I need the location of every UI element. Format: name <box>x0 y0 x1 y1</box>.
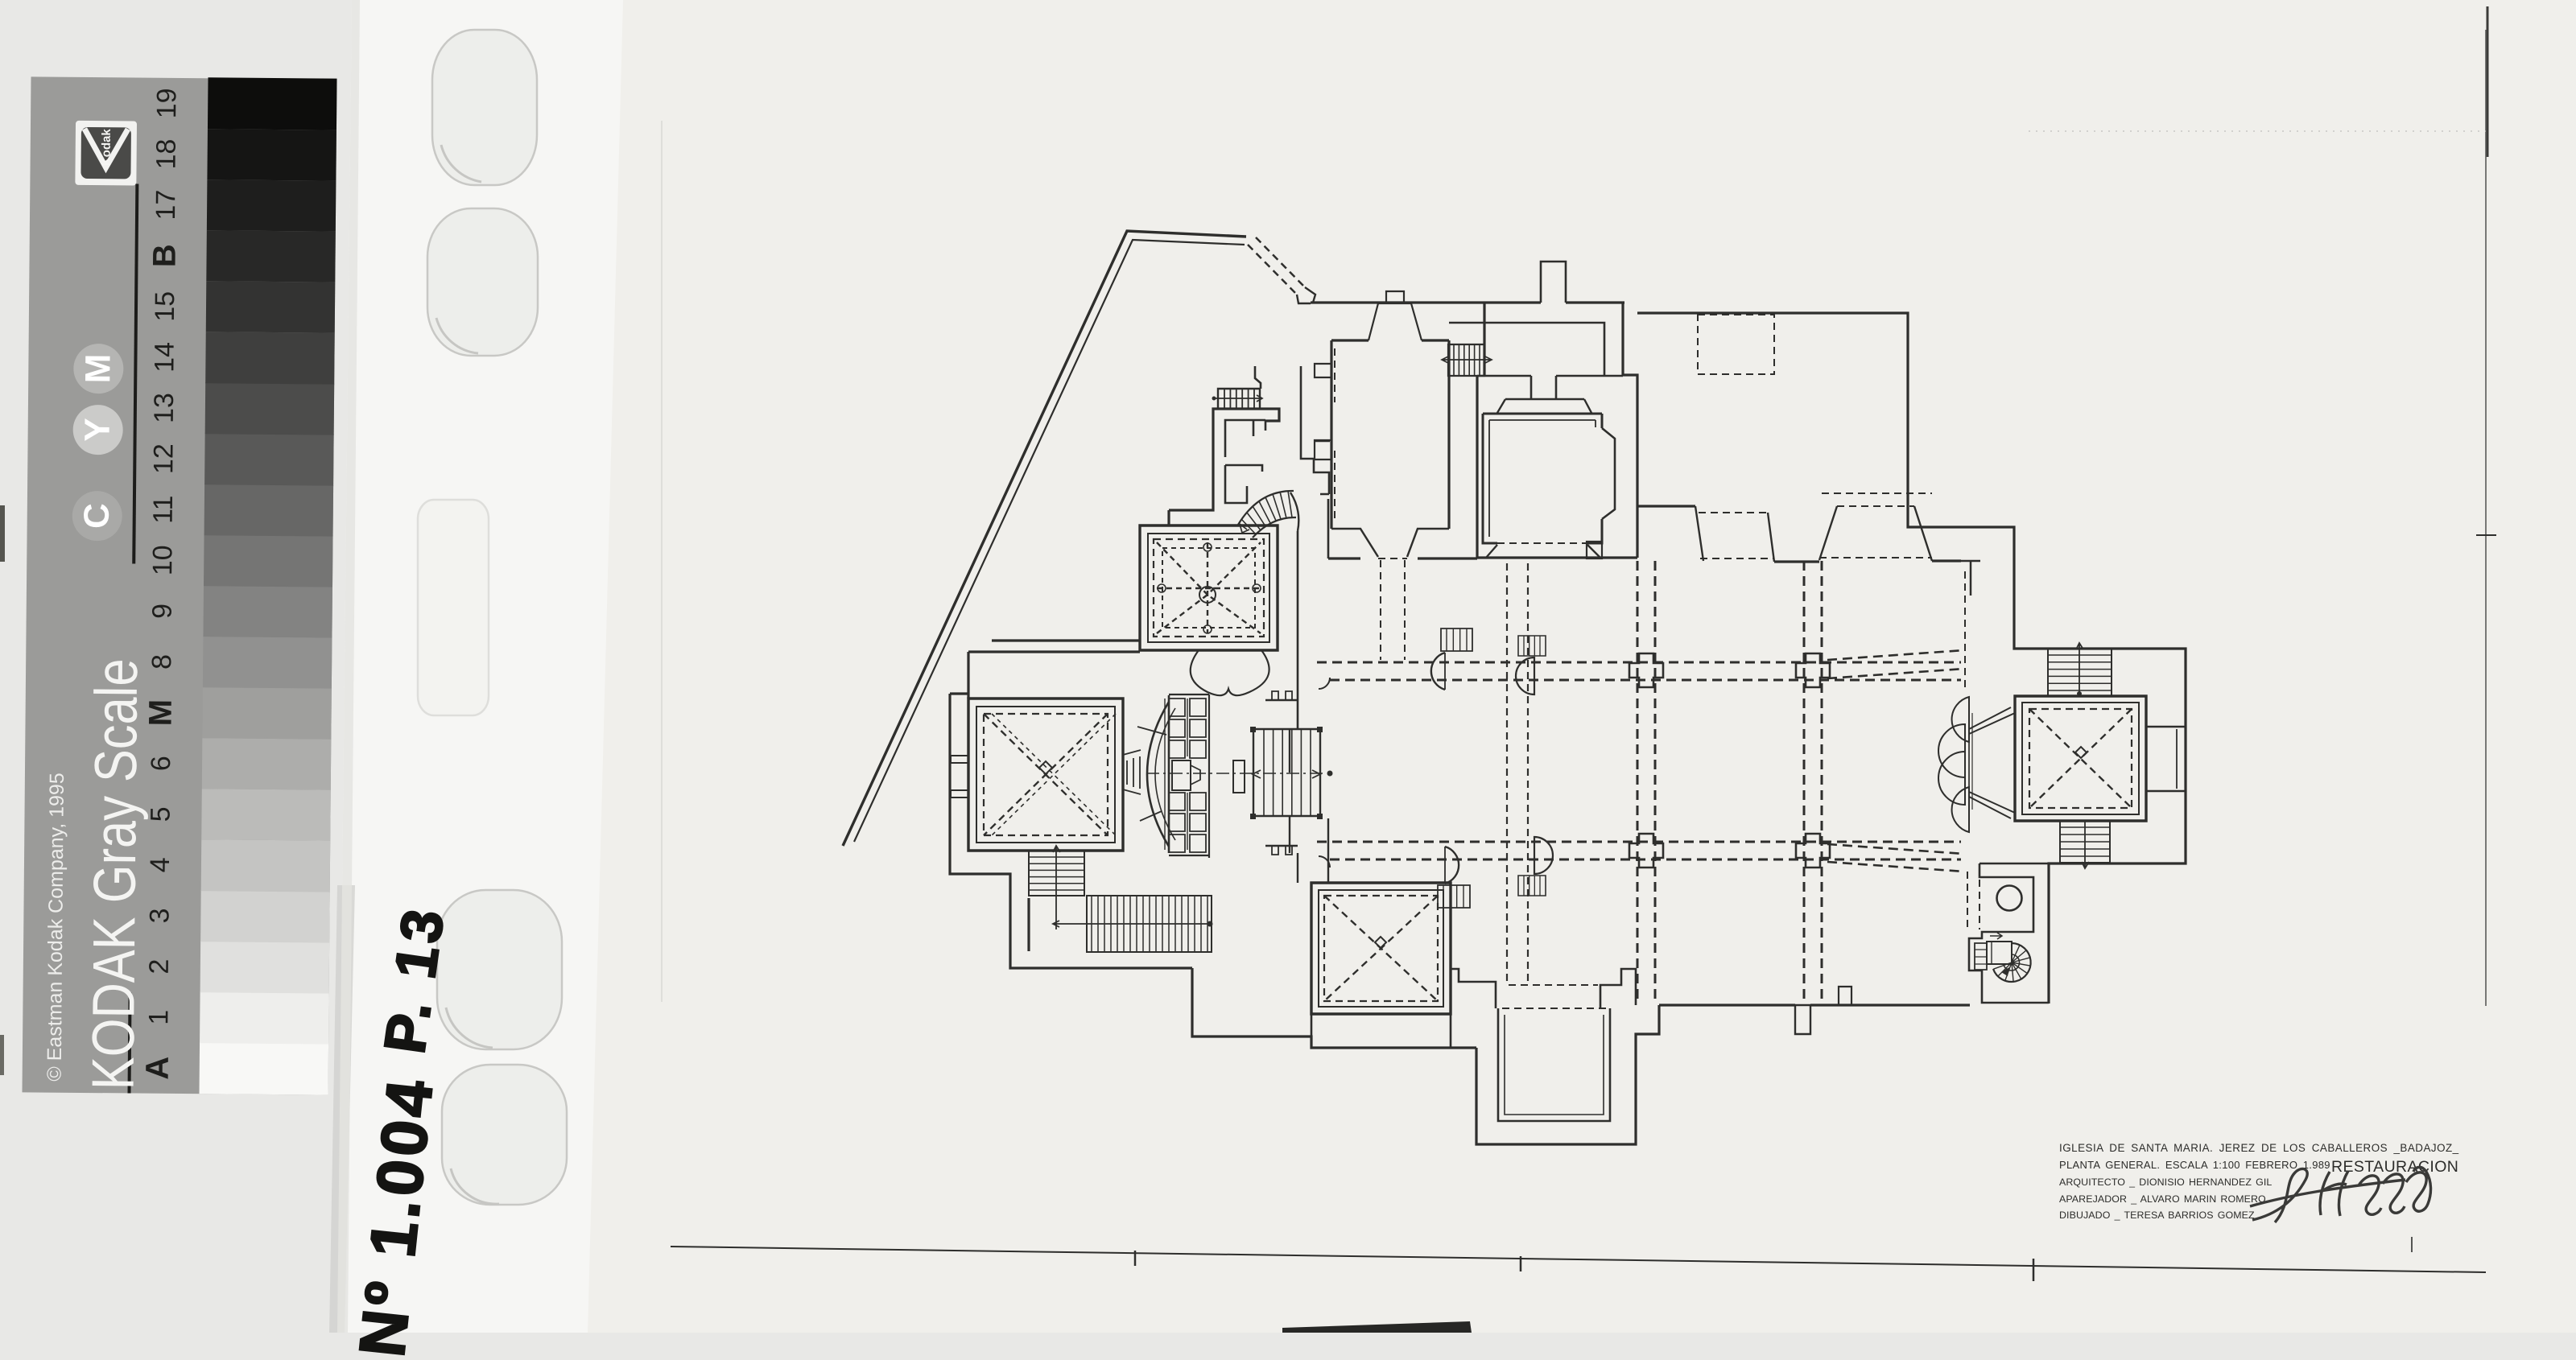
svg-text:ARQUITECTO _ DIONISIO HERNAN: ARQUITECTO _ DIONISIO HERNANDEZ GIL <box>2059 1177 2272 1188</box>
svg-text:IGLESIA DE SANTA MARIA. J: IGLESIA DE SANTA MARIA. JEREZ DE LOS CAB… <box>2059 1142 2459 1154</box>
svg-text:PLANTA GENERAL. ESCALA 1:1: PLANTA GENERAL. ESCALA 1:100 FEBRERO 1.9… <box>2059 1159 2330 1171</box>
svg-text:DIBUJADO _ TERESA BARRIOS G: DIBUJADO _ TERESA BARRIOS GOMEZ <box>2059 1210 2255 1221</box>
svg-text:APAREJADOR _ ALVARO MARIN R: APAREJADOR _ ALVARO MARIN ROMERO <box>2059 1193 2266 1205</box>
